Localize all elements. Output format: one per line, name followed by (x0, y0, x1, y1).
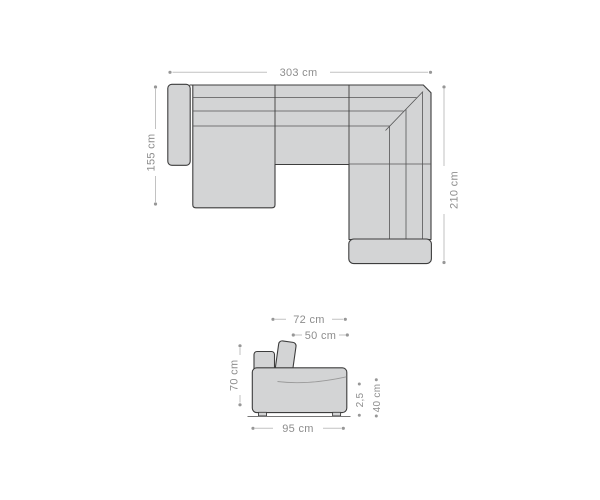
top-view-right-depth-label: 210 cm (448, 171, 460, 209)
side-view: 72 cm 50 cm 70 cm 95 cm (228, 314, 382, 435)
side-view-front-foot (259, 412, 267, 416)
left-armrest (168, 84, 190, 165)
top-view-width-label: 303 cm (280, 67, 318, 79)
side-view-foot-height-dimension: 2,5 (355, 383, 366, 417)
top-view-width-dimension: 303 cm (168, 67, 432, 79)
side-view-seat-depth-label: 50 cm (305, 330, 336, 342)
side-view-seat-height-label: 40 cm (372, 384, 383, 413)
side-view-base-depth-label: 95 cm (282, 423, 313, 435)
side-view-total-depth-dimension: 72 cm (271, 314, 347, 326)
side-view-seat-height-dimension: 40 cm (372, 378, 383, 417)
dimension-drawing-canvas: 303 cm 155 cm 210 cm (0, 0, 600, 500)
top-view-sofa-body (190, 85, 431, 240)
corner-armrest (349, 239, 432, 264)
side-view-back-height-dimension: 70 cm (228, 344, 241, 406)
sofa-dimension-diagram: 303 cm 155 cm 210 cm (0, 0, 600, 500)
top-view-right-depth-dimension: 210 cm (442, 85, 460, 264)
side-view-seat-body (252, 368, 346, 413)
top-view-left-depth-dimension: 155 cm (145, 85, 157, 205)
side-view-back-height-label: 70 cm (228, 360, 240, 391)
side-view-base-depth-dimension: 95 cm (251, 423, 345, 435)
top-view-left-depth-label: 155 cm (145, 134, 157, 172)
side-view-seat-depth-dimension: 50 cm (292, 330, 349, 342)
side-view-foot-height-label: 2,5 (355, 392, 366, 407)
top-view: 303 cm 155 cm 210 cm (145, 67, 460, 264)
side-view-rear-foot (333, 412, 341, 416)
side-view-total-depth-label: 72 cm (293, 314, 324, 326)
